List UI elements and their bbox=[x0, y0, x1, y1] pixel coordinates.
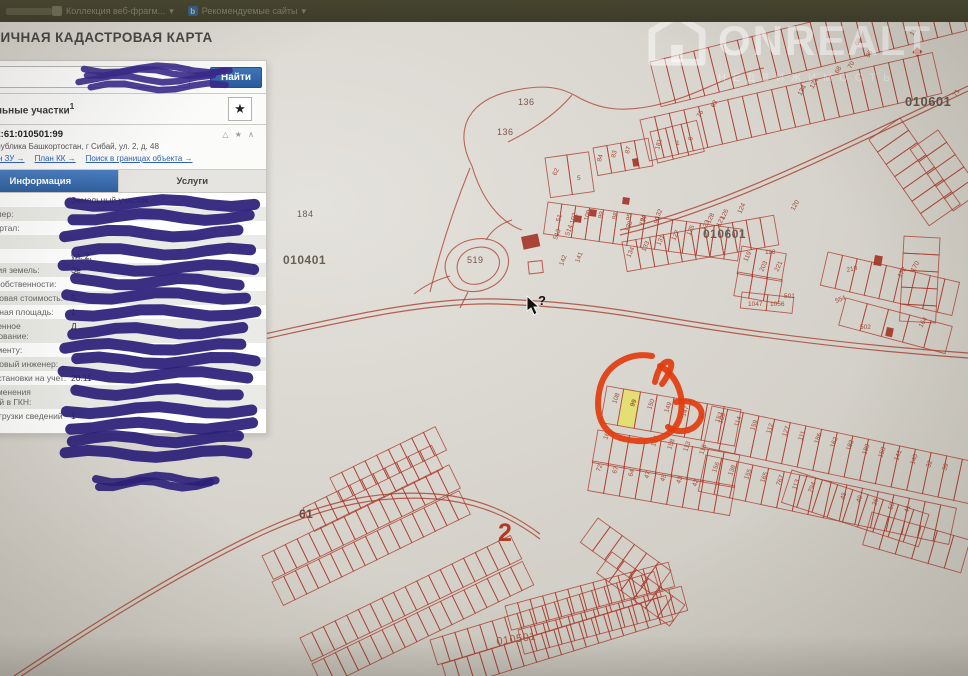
field-value bbox=[67, 359, 262, 369]
info-row: Кад. квартал: bbox=[0, 221, 266, 235]
parcel-number-label: 45 bbox=[659, 473, 668, 483]
parcel-cell[interactable] bbox=[382, 624, 405, 653]
parcel-number-label: 67 bbox=[611, 465, 620, 475]
parcel-cell[interactable] bbox=[391, 488, 414, 517]
building-footprint bbox=[632, 158, 639, 167]
parcel-cell[interactable] bbox=[365, 455, 388, 484]
parcel-cell[interactable] bbox=[412, 508, 435, 537]
parcel-cell[interactable] bbox=[511, 561, 534, 590]
parcel-number-label: 128 bbox=[705, 212, 716, 225]
quarter-label: 519 bbox=[467, 255, 484, 265]
parcel-cell[interactable] bbox=[912, 179, 952, 213]
boundary-line bbox=[430, 168, 470, 292]
parcel-cell[interactable] bbox=[408, 451, 431, 480]
parcel-number-label: 1047 bbox=[748, 301, 763, 308]
parcel-cell[interactable] bbox=[312, 627, 335, 656]
parcel-cell[interactable] bbox=[605, 536, 635, 569]
parcel-cell[interactable] bbox=[757, 90, 781, 134]
field-value: Д bbox=[67, 321, 262, 341]
info-row: Дата изменения сведений в ГКН: bbox=[0, 385, 266, 409]
parcel-cell[interactable] bbox=[394, 618, 417, 647]
parcel-number-label: 141 bbox=[893, 449, 903, 462]
parcel-header: 1. 02:61:010501:99 △ ★ ∧ Республика Башк… bbox=[0, 125, 266, 170]
parcel-cell[interactable] bbox=[624, 436, 645, 471]
parcel-cell[interactable] bbox=[285, 539, 308, 568]
parcel-cell[interactable] bbox=[370, 630, 393, 659]
parcel-cell[interactable] bbox=[859, 66, 883, 110]
parcel-cell[interactable] bbox=[920, 192, 960, 226]
parcel-cell[interactable] bbox=[417, 607, 440, 636]
parcel-cell[interactable] bbox=[781, 26, 807, 74]
parcel-cell[interactable] bbox=[417, 575, 440, 604]
info-row: Адрес:ул. 2, bbox=[0, 249, 266, 263]
parcel-number-label: 1 bbox=[676, 140, 680, 147]
info-row: Тип:Земельный участок bbox=[0, 193, 266, 207]
parcel-cell[interactable] bbox=[330, 548, 353, 577]
parcel-number-label: 157 bbox=[650, 435, 660, 448]
parcel-cell[interactable] bbox=[617, 544, 647, 577]
parcel-cell[interactable] bbox=[284, 571, 307, 600]
field-value: 1 bbox=[67, 307, 262, 317]
parcel-cell[interactable] bbox=[845, 69, 869, 113]
bookmark-item-collection[interactable]: Коллекция веб-фрагм... ▾ bbox=[52, 6, 174, 17]
parcel-number-label: 39 bbox=[941, 462, 950, 472]
quarter-label: 2 bbox=[498, 519, 512, 547]
parcel-cell[interactable] bbox=[377, 450, 400, 479]
parcel-number-label: 147 bbox=[680, 405, 690, 418]
parcel-number-label: 140 bbox=[909, 453, 919, 466]
parcel-number-label: 6 bbox=[687, 136, 695, 142]
parcel-cell[interactable] bbox=[860, 304, 888, 337]
parcel-cell[interactable] bbox=[954, 459, 968, 503]
parcel-cell[interactable] bbox=[895, 155, 935, 189]
field-value: 1 bbox=[67, 411, 262, 431]
info-row: по документу: bbox=[0, 343, 266, 357]
parcel-number-label: 186 bbox=[813, 432, 823, 445]
parcel-number-label: 125 bbox=[685, 224, 696, 237]
find-button[interactable]: Найти bbox=[210, 67, 262, 88]
parcel-number-label: 49 bbox=[855, 494, 864, 504]
field-label: Форма собственности: bbox=[0, 279, 67, 289]
parcel-cell[interactable] bbox=[815, 76, 839, 120]
parcel-number-label: 64 bbox=[627, 468, 636, 478]
info-row: Форма собственности: bbox=[0, 277, 266, 291]
parcel-cell[interactable] bbox=[365, 531, 388, 560]
parcel-number-label: 50 bbox=[887, 501, 896, 511]
parcel-cell[interactable] bbox=[874, 63, 898, 107]
parcel-number-label: 183 bbox=[845, 439, 855, 452]
parcel-cell[interactable] bbox=[297, 533, 320, 562]
parcel-cell[interactable] bbox=[440, 564, 463, 593]
field-label: Тип: bbox=[0, 195, 67, 205]
parcel-cell[interactable] bbox=[272, 576, 295, 605]
parcel-address: Республика Башкортостан, г Сибай, ул. 2,… bbox=[0, 142, 260, 151]
parcel-number-label: 141 bbox=[574, 251, 584, 264]
info-row: Дата постановки на учет:20.11 bbox=[0, 371, 266, 385]
parcel-cell[interactable] bbox=[580, 518, 610, 551]
parcel-cell[interactable] bbox=[382, 592, 405, 621]
parcel-row bbox=[839, 298, 952, 354]
parcel-cell[interactable] bbox=[452, 590, 475, 619]
parcel-number-label: 63 bbox=[710, 99, 720, 109]
parcel-row bbox=[300, 535, 522, 661]
parcel-cell[interactable] bbox=[429, 570, 452, 599]
quarter-label: 184 bbox=[297, 209, 314, 219]
parcel-cell[interactable] bbox=[452, 558, 475, 587]
parcel-cell[interactable] bbox=[830, 73, 854, 117]
parcel-cell[interactable] bbox=[441, 596, 464, 625]
parcel-cell[interactable] bbox=[903, 510, 929, 547]
parcel-cell[interactable] bbox=[347, 610, 370, 639]
field-value: Зе bbox=[67, 265, 262, 275]
parcel-fields-table: Тип:Земельный участокКад. номер:Кад. ква… bbox=[0, 193, 266, 433]
parcel-cell[interactable] bbox=[772, 86, 796, 130]
parcel-cell[interactable] bbox=[746, 218, 765, 250]
parcel-number-label: 118 bbox=[765, 249, 776, 256]
parcel-number-label: 502 bbox=[860, 324, 871, 331]
parcel-number-label: 501 bbox=[784, 293, 795, 300]
parcel-row bbox=[869, 118, 960, 226]
parcel-number-label: 45 bbox=[839, 491, 848, 501]
parcel-number-label: 767 bbox=[775, 474, 785, 487]
panel-tabs: Информация Услуги bbox=[0, 170, 266, 193]
info-row: Дата выгрузки сведений из ГКН:1 bbox=[0, 409, 266, 433]
parcel-header-icons[interactable]: △ ★ ∧ bbox=[222, 130, 256, 139]
parcel-number-label: 158 bbox=[666, 438, 676, 451]
parcel-number-label: 87 bbox=[624, 145, 633, 154]
parcel-cell[interactable] bbox=[402, 482, 425, 511]
parcel-cell[interactable] bbox=[274, 545, 297, 574]
info-row: Категория земель:Зе bbox=[0, 263, 266, 277]
field-value bbox=[67, 237, 262, 247]
field-label: Кадастровый инженер: bbox=[0, 359, 67, 369]
results-group-label: Земельные участки1 bbox=[0, 101, 74, 116]
search-input[interactable] bbox=[0, 66, 190, 88]
parcel-cell[interactable] bbox=[412, 432, 435, 461]
parcel-cell[interactable] bbox=[385, 462, 408, 491]
parcel-cell[interactable] bbox=[679, 51, 705, 99]
parcel-number-label: 132 bbox=[653, 208, 664, 221]
quarter-label: 136 bbox=[518, 97, 535, 107]
parcel-row bbox=[863, 512, 968, 573]
screen-photo: 1081501491479715316111571581131167267644… bbox=[0, 0, 968, 676]
parcel-cell[interactable] bbox=[335, 647, 358, 676]
parcel-cell[interactable] bbox=[367, 499, 390, 528]
bookmark-icon bbox=[52, 6, 62, 16]
parcel-cell[interactable] bbox=[902, 253, 939, 272]
parcel-number-label: 98 bbox=[611, 211, 620, 220]
parcel-number-label: 149 bbox=[663, 401, 673, 414]
parcel-row bbox=[505, 562, 675, 630]
parcel-number-label: 83 bbox=[610, 149, 619, 158]
cadastral-number: 02:61:010501:99 bbox=[0, 129, 63, 140]
parcel-cell[interactable] bbox=[396, 457, 419, 486]
parcel-cell[interactable] bbox=[324, 653, 347, 676]
parcel-number-label: 70 bbox=[847, 60, 857, 70]
parcel-number-label: 32 bbox=[925, 459, 934, 469]
parcel-number-label: 1056 bbox=[770, 301, 785, 308]
road-line bbox=[14, 493, 540, 676]
parcel-number-label: 62 bbox=[551, 167, 561, 177]
parcel-cell[interactable] bbox=[319, 554, 342, 583]
quarter-label: 61 bbox=[299, 507, 313, 521]
results-group-row: Земельные участки1 ★ bbox=[0, 94, 266, 125]
parcel-cell[interactable] bbox=[437, 465, 460, 494]
parcel-cell[interactable] bbox=[309, 528, 332, 557]
info-row: Кад. номер: bbox=[0, 207, 266, 221]
plan-kk-link[interactable]: План КК → bbox=[35, 154, 76, 163]
field-label: Кад. квартал: bbox=[0, 223, 67, 233]
parcel-number-label: 5 bbox=[577, 175, 581, 182]
parcel-number-label: 794 bbox=[807, 481, 817, 494]
parcel-cell[interactable] bbox=[454, 656, 474, 676]
parcel-cell[interactable] bbox=[728, 96, 752, 140]
parcel-cell[interactable] bbox=[567, 152, 594, 195]
parcel-cell[interactable] bbox=[342, 467, 365, 496]
parcel-cell[interactable] bbox=[379, 493, 402, 522]
parcel-cell[interactable] bbox=[295, 565, 318, 594]
field-value: 5 bbox=[67, 293, 262, 303]
clear-search-icon[interactable]: × bbox=[194, 71, 206, 83]
parcel-cell[interactable] bbox=[918, 53, 942, 97]
parcel-number-label: 134 bbox=[625, 246, 636, 259]
parcel-cell[interactable] bbox=[487, 573, 510, 602]
parcel-number-label: 102 bbox=[569, 212, 579, 225]
parcel-number-label: 172 bbox=[897, 266, 909, 279]
parcel-number-label: 126 bbox=[719, 208, 730, 221]
quarter-label: 136 bbox=[497, 127, 514, 137]
field-value bbox=[67, 223, 262, 233]
mouse-cursor: ? bbox=[527, 293, 546, 315]
results-count-sup: 1 bbox=[70, 101, 75, 111]
parcel-cell[interactable] bbox=[877, 130, 917, 164]
parcel-number-label: 180 bbox=[861, 443, 871, 456]
field-label: Дата изменения сведений в ГКН: bbox=[0, 387, 67, 407]
parcel-cell[interactable] bbox=[347, 641, 370, 670]
parcel-cell[interactable] bbox=[429, 601, 452, 630]
parcel-cell[interactable] bbox=[723, 40, 749, 88]
field-value bbox=[67, 209, 262, 219]
parcel-cell[interactable] bbox=[323, 621, 346, 650]
parcel-cell[interactable] bbox=[307, 559, 330, 588]
parcel-cell[interactable] bbox=[377, 525, 400, 554]
parcel-square bbox=[528, 261, 543, 274]
boundary-line bbox=[472, 166, 522, 230]
parcel-number-label: 158 bbox=[877, 446, 887, 459]
parcel-cell[interactable] bbox=[320, 522, 343, 551]
parcel-cell[interactable] bbox=[330, 472, 353, 501]
parcel-cell[interactable] bbox=[464, 553, 487, 582]
parcel-number-label: 133 bbox=[640, 240, 651, 253]
field-label: по документу: bbox=[0, 345, 67, 355]
building-footprint bbox=[521, 233, 540, 249]
field-label: Дата постановки на учет: bbox=[0, 373, 67, 383]
parcel-number-label: 165 bbox=[759, 471, 769, 484]
parcel-cell[interactable] bbox=[312, 658, 335, 676]
parcel-cell[interactable] bbox=[393, 587, 416, 616]
parcel-cell[interactable] bbox=[300, 632, 323, 661]
parcel-row bbox=[900, 236, 940, 323]
parcel-number-label: 554 bbox=[834, 294, 847, 304]
bookmark-item-recommended[interactable]: b Рекомендуемые сайты ▾ bbox=[188, 6, 306, 17]
parcel-number-label: 113 bbox=[791, 478, 801, 490]
bookmark-fragment bbox=[6, 8, 52, 15]
parcel-cell[interactable] bbox=[737, 37, 763, 85]
parcel-cell[interactable] bbox=[358, 604, 381, 633]
tab-services[interactable]: Услуги bbox=[118, 170, 266, 192]
parcel-number-label: 84 bbox=[596, 153, 605, 162]
field-value: Земельный участок bbox=[67, 195, 262, 205]
parcel-cell[interactable] bbox=[354, 536, 377, 565]
parcel-number-label: 11 bbox=[909, 27, 919, 37]
parcel-number-label: 111 bbox=[797, 430, 807, 442]
parcel-cell[interactable] bbox=[903, 167, 943, 201]
field-label: Уточненная площадь: bbox=[0, 307, 67, 317]
parcel-cell[interactable] bbox=[361, 474, 384, 503]
parcel-number-label: 127 bbox=[781, 425, 791, 438]
parcel-cell[interactable] bbox=[420, 445, 443, 474]
parcel-number-label: 162 bbox=[829, 436, 839, 449]
parcel-cell[interactable] bbox=[389, 519, 412, 548]
parcel-cell[interactable] bbox=[400, 438, 423, 467]
parcel-cell[interactable] bbox=[464, 584, 487, 613]
parcel-cell[interactable] bbox=[447, 491, 470, 520]
parcel-cell[interactable] bbox=[332, 516, 355, 545]
parcel-cell[interactable] bbox=[424, 502, 447, 531]
parcel-cell[interactable] bbox=[405, 581, 428, 610]
info-row: Уточненная площадь:1 bbox=[0, 305, 266, 319]
parcel-cell[interactable] bbox=[825, 15, 851, 63]
building-footprint bbox=[873, 255, 883, 266]
info-row: Кадастровая стоимость:5 bbox=[0, 291, 266, 305]
field-value: 20.11 bbox=[67, 373, 262, 383]
parcel-cell[interactable] bbox=[476, 579, 499, 608]
parcel-info-panel: × Найти Земельные участки1 ★ 1. 02:61:01… bbox=[0, 60, 267, 434]
parcel-number-label: 113 bbox=[682, 440, 692, 452]
cursor-question-glyph: ? bbox=[538, 293, 546, 308]
field-label: Дата выгрузки сведений из ГКН: bbox=[0, 411, 67, 431]
parcel-cell[interactable] bbox=[370, 598, 393, 627]
parcel-cell[interactable] bbox=[742, 93, 766, 137]
parcel-number-label: 120 bbox=[790, 199, 802, 212]
quarter-label: 010601 bbox=[905, 94, 951, 109]
parcel-number-label: 210 bbox=[846, 265, 858, 274]
parcel-cell[interactable] bbox=[945, 179, 968, 211]
parcel-number-label: 119 bbox=[742, 250, 753, 263]
parcel-number-label: 127 bbox=[670, 229, 681, 242]
parcel-cell[interactable] bbox=[669, 110, 693, 154]
parcel-cell[interactable] bbox=[359, 636, 382, 665]
parcel-cell[interactable] bbox=[405, 613, 428, 642]
parcel-row bbox=[703, 406, 968, 504]
parcel-cell[interactable] bbox=[655, 113, 679, 157]
plan-zu-link[interactable]: План ЗУ → bbox=[0, 154, 25, 163]
parcel-cell[interactable] bbox=[335, 615, 358, 644]
field-label: Разрешенное использование: bbox=[0, 321, 67, 341]
parcel-cell[interactable] bbox=[342, 542, 365, 571]
parcel-cell[interactable] bbox=[373, 468, 396, 497]
parcel-cell[interactable] bbox=[353, 461, 376, 490]
tab-information[interactable]: Информация bbox=[0, 170, 118, 192]
field-value bbox=[67, 387, 262, 407]
field-label: Кадастровая стоимость: bbox=[0, 293, 67, 303]
favorite-star-button[interactable]: ★ bbox=[228, 97, 252, 121]
parcel-cell[interactable] bbox=[796, 22, 822, 70]
parcel-cell[interactable] bbox=[545, 155, 572, 198]
parcel-number-label: 513 bbox=[552, 228, 562, 241]
info-row: Статус: bbox=[0, 235, 266, 249]
parcel-number-label: 51 bbox=[555, 213, 564, 222]
parcel-number-label: 76 bbox=[696, 109, 706, 119]
field-value bbox=[67, 345, 262, 355]
parcel-cell[interactable] bbox=[467, 653, 487, 676]
parcel-cell[interactable] bbox=[344, 510, 367, 539]
browser-bookmarks-bar: Коллекция веб-фрагм... ▾ b Рекомендуемые… bbox=[0, 0, 968, 22]
parcel-cell[interactable] bbox=[766, 29, 792, 77]
field-label: Статус: bbox=[0, 237, 67, 247]
parcel-cell[interactable] bbox=[694, 47, 720, 95]
parcel-number-label: 124 bbox=[736, 202, 747, 215]
parcel-cell[interactable] bbox=[937, 279, 959, 316]
parcel-cell[interactable] bbox=[900, 287, 937, 306]
parcel-cell[interactable] bbox=[760, 215, 779, 247]
parcel-number-label: 96 bbox=[865, 49, 875, 59]
parcel-number-label: 100 bbox=[583, 209, 593, 222]
parcel-cell[interactable] bbox=[944, 535, 968, 572]
parcel-cell[interactable] bbox=[903, 236, 940, 255]
parcel-cell[interactable] bbox=[414, 476, 437, 505]
field-label: Кад. номер: bbox=[0, 209, 67, 219]
parcel-number-label: 99 bbox=[597, 210, 606, 219]
parcel-cell[interactable] bbox=[810, 18, 836, 66]
parcel-cell[interactable] bbox=[262, 550, 285, 579]
bing-icon: b bbox=[188, 6, 198, 16]
parcel-number-label: 41 bbox=[903, 504, 912, 514]
parcel-cell[interactable] bbox=[886, 143, 926, 177]
parcel-cell[interactable] bbox=[475, 547, 498, 576]
parcel-cell[interactable] bbox=[499, 567, 522, 596]
page-title: ПУБЛИЧНАЯ КАДАСТРОВАЯ КАРТА bbox=[0, 30, 213, 45]
quarter-label: 010501 bbox=[496, 631, 537, 648]
parcel-cell[interactable] bbox=[355, 505, 378, 534]
parcel-cell[interactable] bbox=[593, 527, 623, 560]
field-value bbox=[67, 279, 262, 289]
search-in-bounds-link[interactable]: Поиск в границах объекта → bbox=[86, 154, 193, 163]
parcel-cell[interactable] bbox=[423, 427, 446, 456]
parcel-row bbox=[442, 596, 673, 676]
parcel-cell[interactable] bbox=[388, 444, 411, 473]
parcel-cell[interactable] bbox=[426, 471, 449, 500]
parcel-number-label: 134 bbox=[797, 84, 809, 97]
parcel-row bbox=[330, 427, 447, 502]
parcel-cell[interactable] bbox=[924, 321, 952, 354]
building-footprint bbox=[885, 327, 894, 337]
field-label: Адрес: bbox=[0, 251, 67, 261]
parcel-cell[interactable] bbox=[401, 514, 424, 543]
parcel-row bbox=[910, 130, 968, 211]
info-row: Кадастровый инженер: bbox=[0, 357, 266, 371]
parcel-cell[interactable] bbox=[752, 33, 778, 81]
parcel-number-label: 116 bbox=[698, 443, 708, 455]
boundary-line bbox=[457, 247, 499, 284]
building-footprint bbox=[622, 197, 630, 205]
parcel-cell[interactable] bbox=[881, 309, 909, 342]
quarter-label: 010401 bbox=[283, 253, 326, 267]
road-line bbox=[14, 498, 540, 676]
parcel-cell[interactable] bbox=[650, 58, 676, 106]
parcel-number-label: 108 bbox=[611, 392, 621, 405]
quarter-label: 010601 bbox=[703, 227, 746, 241]
